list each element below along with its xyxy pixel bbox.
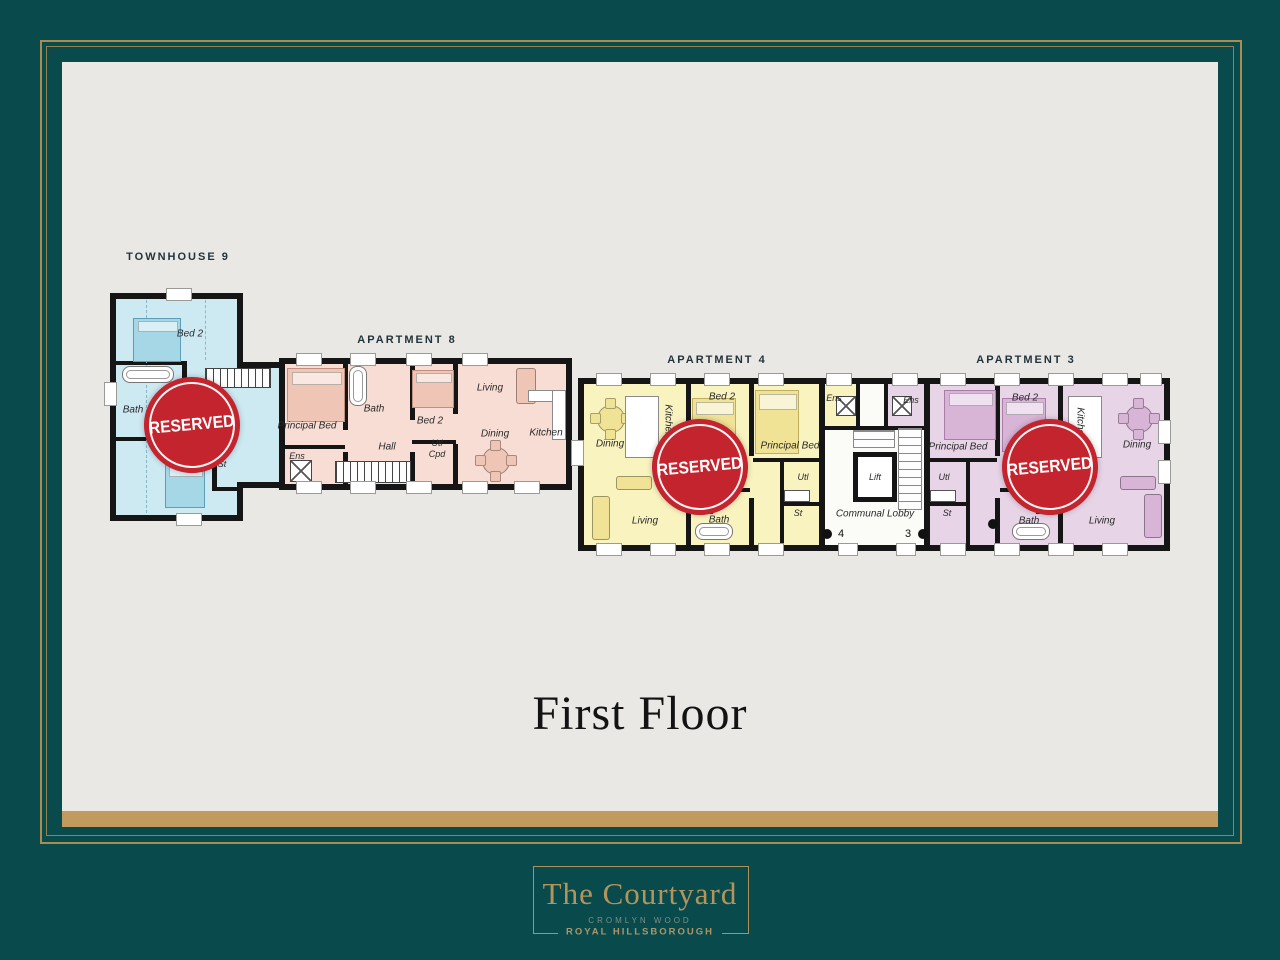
room-label-principal-bed: Principal Bed bbox=[278, 421, 337, 432]
room-label-ens: Ens bbox=[289, 451, 305, 461]
wall bbox=[930, 458, 997, 462]
room-label-principal-bed: Principal Bed bbox=[929, 442, 988, 453]
chair bbox=[475, 455, 486, 466]
window bbox=[1158, 460, 1171, 484]
dining-table-icon bbox=[475, 440, 515, 480]
window bbox=[571, 440, 584, 466]
room-label-living: Living bbox=[477, 383, 503, 394]
chair bbox=[490, 440, 501, 451]
bathtub-icon bbox=[695, 523, 733, 540]
unit-title-apartment8: APARTMENT 8 bbox=[357, 334, 456, 346]
window bbox=[826, 373, 852, 386]
door-dot bbox=[918, 529, 928, 539]
room-label-utl: Utl bbox=[798, 472, 809, 482]
window bbox=[994, 543, 1020, 556]
door-number-4: 4 bbox=[838, 528, 844, 540]
window bbox=[166, 288, 192, 301]
window bbox=[704, 543, 730, 556]
wall bbox=[453, 444, 458, 484]
window bbox=[596, 373, 622, 386]
chair bbox=[605, 398, 616, 409]
window bbox=[350, 481, 376, 494]
room-label-utl: Utl bbox=[432, 438, 443, 448]
room-label-hall: Hall bbox=[378, 442, 395, 453]
lift-label: Lift bbox=[869, 472, 881, 482]
window bbox=[296, 353, 322, 366]
floor-title: First Floor bbox=[0, 686, 1280, 741]
room-label-dining: Dining bbox=[1123, 440, 1151, 451]
ceiling-line bbox=[205, 300, 206, 360]
room-label-dining: Dining bbox=[596, 439, 624, 450]
sofa-icon bbox=[1120, 476, 1156, 490]
brand-subtitle-royal-hillsborough: ROYAL HILLSBOROUGH bbox=[558, 927, 722, 938]
chair bbox=[1133, 398, 1144, 409]
dining-table-icon bbox=[590, 398, 630, 438]
room-label-st: St bbox=[943, 508, 952, 518]
room-label-principal-bed: Principal Bed bbox=[761, 441, 820, 452]
chair bbox=[490, 471, 501, 482]
window bbox=[994, 373, 1020, 386]
window bbox=[650, 373, 676, 386]
wall bbox=[924, 384, 930, 545]
entrance-door bbox=[838, 543, 858, 556]
wall bbox=[856, 384, 860, 430]
window bbox=[940, 373, 966, 386]
room-label-bath: Bath bbox=[123, 405, 144, 416]
washer-icon bbox=[930, 490, 956, 502]
entrance-door bbox=[896, 543, 916, 556]
wall bbox=[212, 487, 243, 491]
bathtub-icon bbox=[122, 366, 174, 383]
bed-icon bbox=[287, 368, 345, 422]
room-label-bath: Bath bbox=[1019, 516, 1040, 527]
room-label-bed2: Bed 2 bbox=[417, 416, 443, 427]
washer-icon bbox=[784, 490, 810, 502]
stairs-icon bbox=[335, 461, 411, 483]
room-label-living: Living bbox=[1089, 516, 1115, 527]
bed-icon bbox=[133, 318, 181, 362]
wall bbox=[930, 502, 970, 506]
room-label-utl: Utl bbox=[939, 472, 950, 482]
door-number-3: 3 bbox=[905, 528, 911, 540]
room-label-bath: Bath bbox=[364, 404, 385, 415]
door-dot bbox=[988, 519, 998, 529]
room-label-bed2: Bed 2 bbox=[177, 329, 203, 340]
room-label-ens: Ens bbox=[903, 395, 919, 405]
window bbox=[514, 481, 540, 494]
room-label-living: Living bbox=[632, 516, 658, 527]
wall bbox=[884, 384, 888, 430]
room-label-bed2: Bed 2 bbox=[709, 392, 735, 403]
brand-name: The Courtyard bbox=[0, 876, 1280, 912]
window bbox=[462, 353, 488, 366]
window bbox=[1102, 373, 1128, 386]
room-label-bed2: Bed 2 bbox=[1012, 393, 1038, 404]
window bbox=[1048, 543, 1074, 556]
window bbox=[1102, 543, 1128, 556]
window bbox=[104, 382, 117, 406]
window bbox=[350, 353, 376, 366]
window bbox=[1158, 420, 1171, 444]
stairs-icon bbox=[898, 428, 922, 510]
door-dot bbox=[822, 529, 832, 539]
window bbox=[406, 353, 432, 366]
wall bbox=[753, 458, 820, 462]
window bbox=[1048, 373, 1074, 386]
wall bbox=[749, 384, 754, 456]
brand-subtitle-cromlyn-wood: CROMLYN WOOD bbox=[0, 916, 1280, 925]
window bbox=[758, 373, 784, 386]
chair bbox=[1133, 429, 1144, 440]
room-label-cpd: Cpd bbox=[429, 449, 446, 459]
wall bbox=[780, 502, 820, 506]
wall bbox=[819, 384, 825, 545]
window bbox=[1140, 373, 1162, 386]
unit-title-apartment3: APARTMENT 3 bbox=[976, 354, 1075, 366]
window bbox=[758, 543, 784, 556]
unit-title-townhouse9: TOWNHOUSE 9 bbox=[126, 251, 230, 263]
window bbox=[704, 373, 730, 386]
window bbox=[596, 543, 622, 556]
room-label-bath: Bath bbox=[709, 515, 730, 526]
room-label-kitchen: Kitchen bbox=[529, 428, 562, 439]
gold-strip bbox=[62, 811, 1218, 827]
wall bbox=[749, 498, 754, 545]
room-label-ens: Ens bbox=[826, 393, 842, 403]
window bbox=[940, 543, 966, 556]
room-label-st: St bbox=[794, 508, 803, 518]
window bbox=[892, 373, 918, 386]
sofa-icon bbox=[616, 476, 652, 490]
sofa-icon bbox=[1144, 494, 1162, 538]
window bbox=[650, 543, 676, 556]
window bbox=[406, 481, 432, 494]
stairs-icon bbox=[853, 430, 895, 448]
bathtub-icon bbox=[349, 366, 367, 406]
window bbox=[176, 513, 202, 526]
bed-icon bbox=[412, 370, 454, 408]
bed-icon bbox=[944, 390, 996, 440]
window bbox=[296, 481, 322, 494]
communal-lobby-label: Communal Lobby bbox=[836, 509, 914, 520]
chair bbox=[590, 413, 601, 424]
shower-icon bbox=[290, 460, 312, 482]
dining-table-icon bbox=[1118, 398, 1158, 438]
window bbox=[462, 481, 488, 494]
sofa-icon bbox=[592, 496, 610, 540]
unit-title-apartment4: APARTMENT 4 bbox=[667, 354, 766, 366]
chair bbox=[1118, 413, 1129, 424]
kitchen-island bbox=[625, 396, 659, 458]
wall bbox=[285, 445, 345, 449]
room-label-dining: Dining bbox=[481, 429, 509, 440]
chair bbox=[506, 455, 517, 466]
